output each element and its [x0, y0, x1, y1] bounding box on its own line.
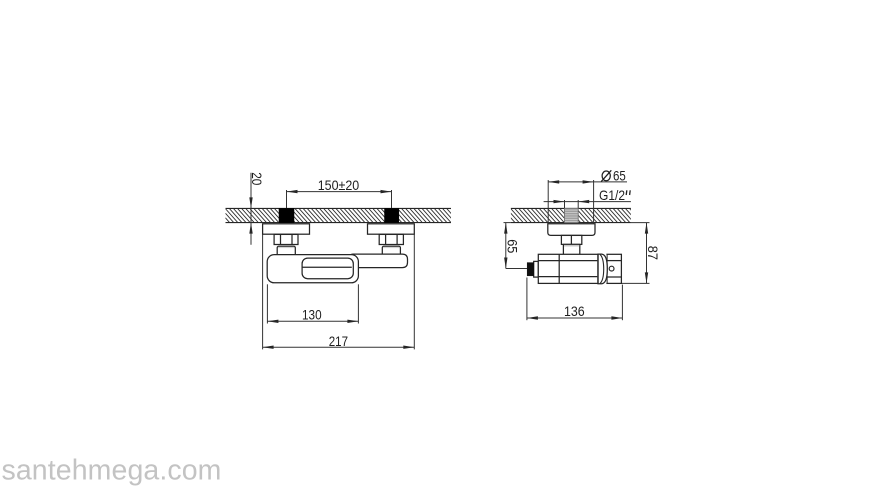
- svg-text:87: 87: [645, 246, 661, 260]
- svg-text:G1/2: G1/2: [599, 187, 625, 203]
- svg-text:130: 130: [302, 307, 322, 323]
- svg-text:65: 65: [505, 239, 521, 253]
- svg-text:65: 65: [613, 167, 626, 183]
- svg-text:150±20: 150±20: [318, 177, 360, 193]
- svg-text:20: 20: [249, 172, 265, 185]
- svg-text:217: 217: [329, 333, 348, 349]
- svg-text:136: 136: [564, 303, 585, 319]
- svg-text:santehmega.com: santehmega.com: [2, 454, 222, 486]
